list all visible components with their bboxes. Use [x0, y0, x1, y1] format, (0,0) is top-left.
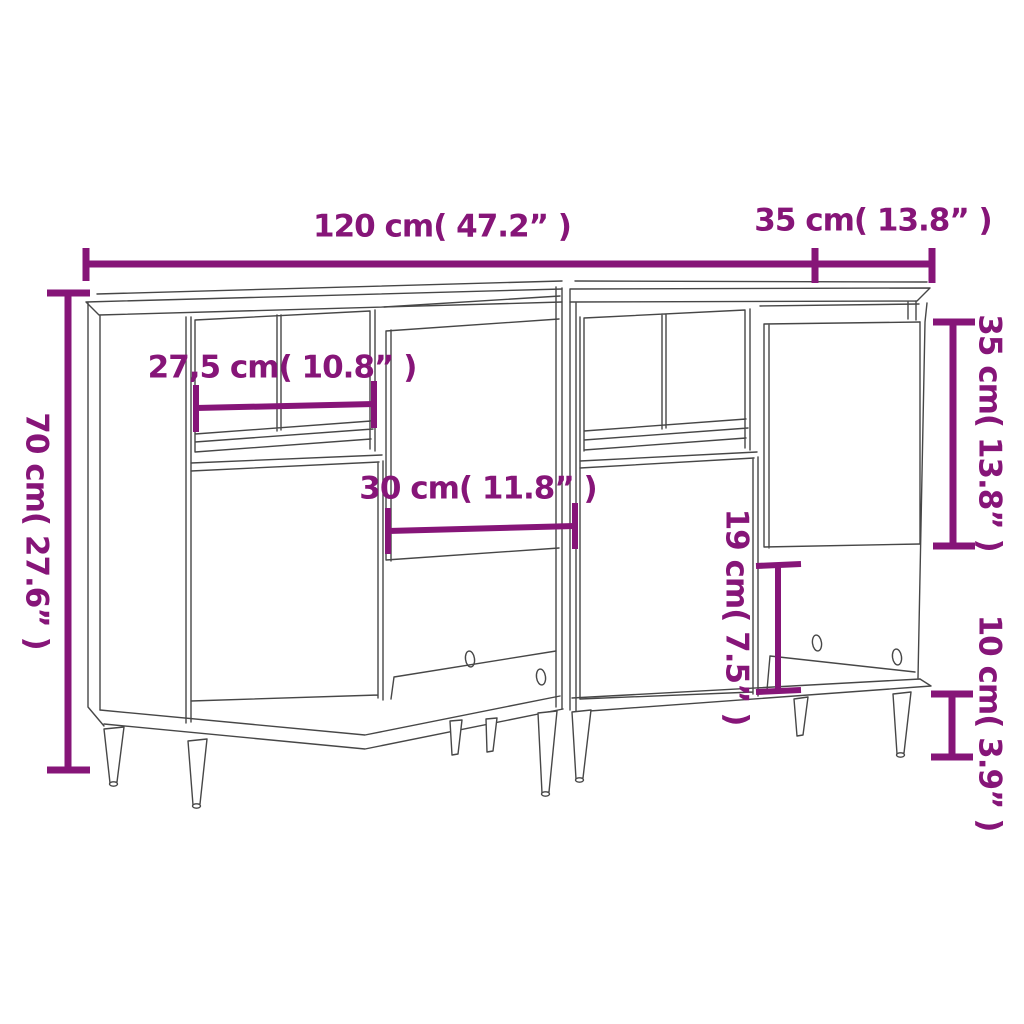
right-tall-door — [760, 304, 920, 548]
right-top-panel — [570, 281, 930, 302]
dim-label-compartment-height: 19 cm( 7.5” ) — [721, 509, 752, 726]
dim-tick — [756, 564, 801, 566]
left-legs — [104, 711, 557, 808]
product-dimension-diagram: 120 cm( 47.2” ) 35 cm( 13.8” ) 70 cm( 27… — [0, 0, 1024, 1024]
dim-tick — [756, 690, 801, 692]
dim-label-shelf-width: 27,5 cm( 10.8” ) — [148, 353, 417, 384]
dim-label-height: 70 cm( 27.6” ) — [21, 412, 52, 649]
back-panel-hole — [811, 634, 822, 651]
left-top-panel — [86, 281, 562, 315]
right-open-shelf — [584, 309, 750, 451]
dim-label-door-width: 30 cm( 11.8” ) — [359, 474, 596, 505]
left-side-panel — [88, 303, 104, 726]
dim-label-depth: 35 cm( 13.8” ) — [754, 206, 991, 237]
left-bottom-door — [191, 455, 383, 701]
left-open-compartment — [391, 651, 556, 699]
dim-label-door-height: 35 cm( 13.8” ) — [974, 314, 1005, 551]
left-tall-door — [384, 296, 560, 561]
dim-label-leg-height: 10 cm( 3.9” ) — [974, 615, 1005, 832]
dim-line-door-width — [388, 526, 575, 531]
back-panel-hole — [535, 668, 546, 685]
dim-line-shelf-width — [196, 404, 374, 408]
back-panel-hole — [891, 648, 902, 665]
diagram-canvas — [0, 0, 1024, 1024]
dim-label-total-width: 120 cm( 47.2” ) — [313, 212, 571, 243]
